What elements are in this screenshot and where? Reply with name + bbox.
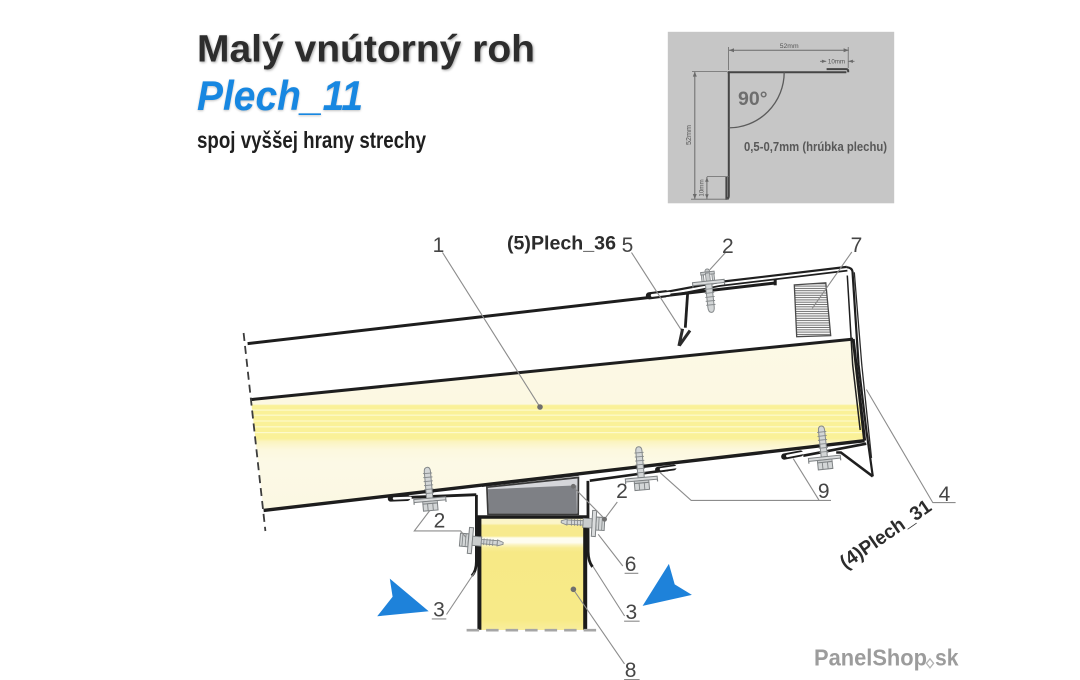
svg-text:4: 4 [939, 483, 951, 506]
svg-text:90°: 90° [738, 88, 768, 110]
svg-text:10mm: 10mm [828, 59, 845, 66]
svg-text:52mm: 52mm [684, 125, 693, 145]
svg-text:9: 9 [818, 480, 830, 503]
svg-text:(5)Plech_36: (5)Plech_36 [507, 233, 616, 255]
svg-text:Plech_11: Plech_11 [197, 72, 363, 119]
svg-text:PanelShop: PanelShop [814, 645, 927, 671]
svg-text:10mm: 10mm [698, 179, 705, 196]
svg-text:2: 2 [722, 235, 734, 258]
svg-text:8: 8 [625, 659, 637, 680]
svg-text:52mm: 52mm [780, 43, 799, 50]
svg-text:3: 3 [433, 599, 445, 622]
svg-text:spoj vyššej hrany strechy: spoj vyššej hrany strechy [197, 127, 426, 153]
svg-text:sk: sk [935, 645, 959, 671]
svg-text:0,5-0,7mm (hrúbka plechu): 0,5-0,7mm (hrúbka plechu) [744, 139, 887, 154]
svg-text:5: 5 [622, 234, 634, 257]
svg-text:1: 1 [433, 234, 445, 257]
svg-text:Malý vnútorný roh: Malý vnútorný roh [197, 29, 535, 71]
svg-text:3: 3 [625, 601, 637, 624]
svg-text:2: 2 [616, 480, 628, 503]
svg-text:2: 2 [434, 510, 446, 533]
svg-text:6: 6 [625, 553, 637, 576]
svg-text:7: 7 [851, 234, 863, 257]
